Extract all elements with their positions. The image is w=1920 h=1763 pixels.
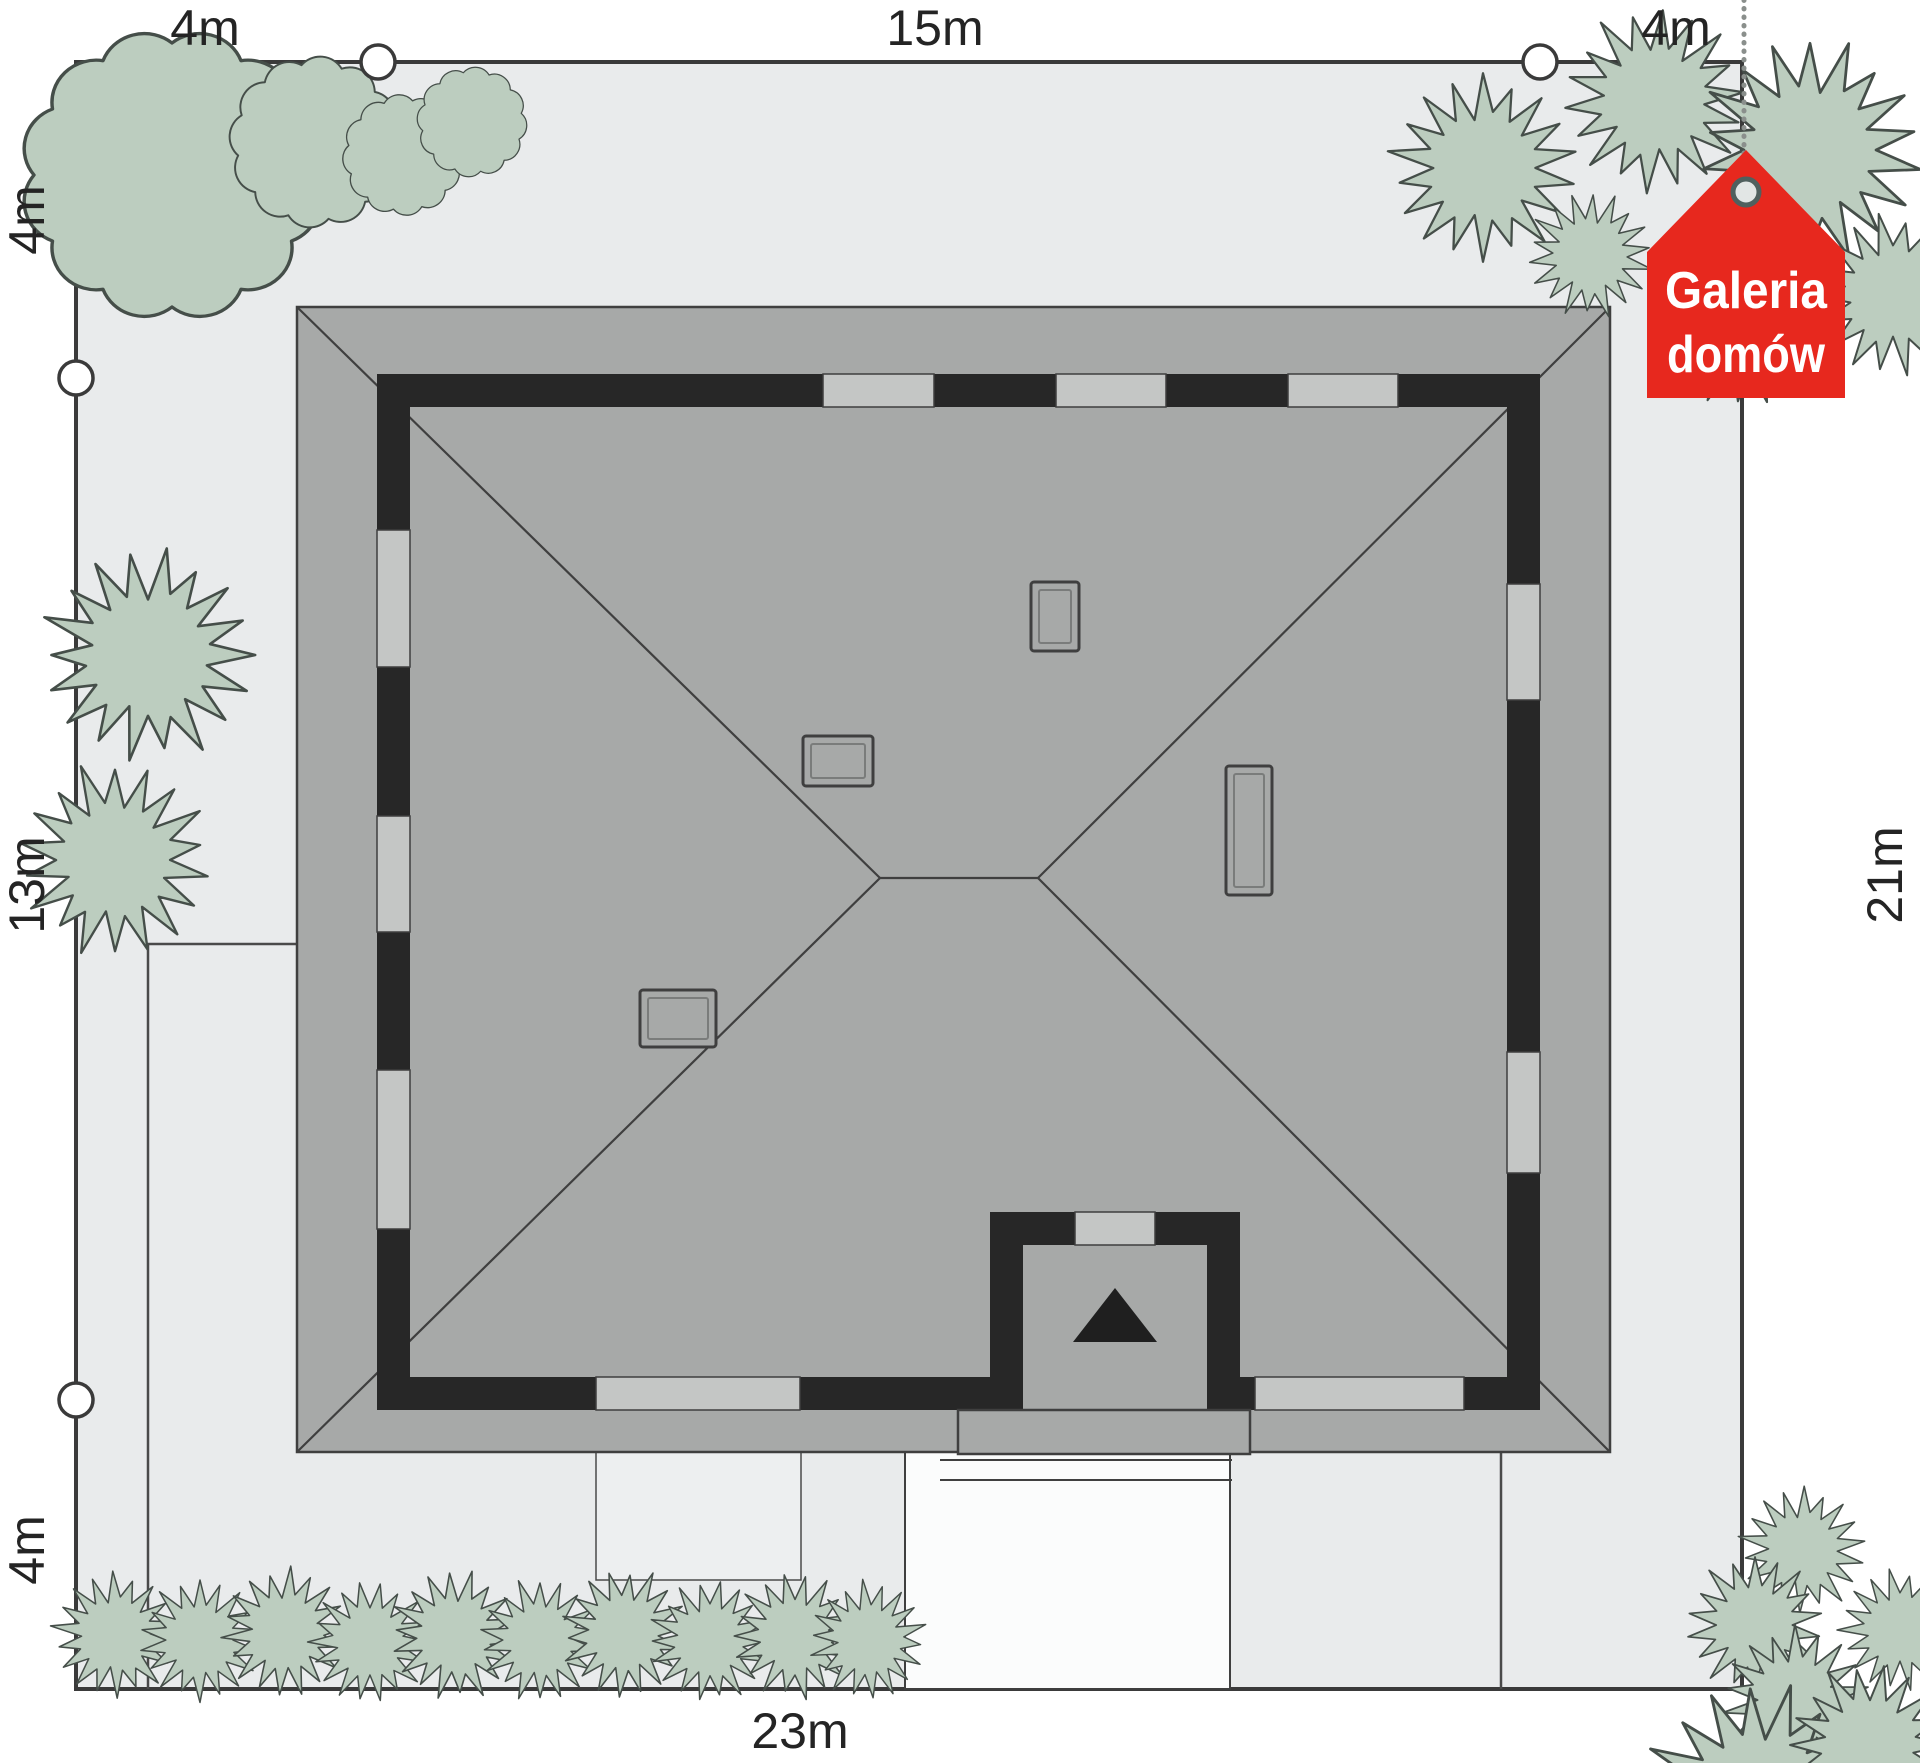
dim-top-center: 15m bbox=[886, 0, 983, 56]
logo-line2: domów bbox=[1667, 326, 1825, 384]
window bbox=[377, 530, 410, 667]
window bbox=[1288, 374, 1398, 407]
window bbox=[377, 1070, 410, 1229]
dim-right: 21m bbox=[1857, 826, 1913, 923]
skylight bbox=[1031, 582, 1079, 651]
survey-marker bbox=[59, 361, 93, 395]
survey-marker bbox=[59, 1383, 93, 1417]
dim-left-middle: 13m bbox=[0, 836, 55, 933]
driveway bbox=[905, 1447, 1230, 1689]
dim-left-bottom: 4m bbox=[0, 1515, 55, 1584]
site-plan: Galeria domów 4m 15m 4m 4m 13m 4m 21m 23… bbox=[0, 0, 1920, 1763]
skylight bbox=[803, 736, 873, 786]
house bbox=[297, 307, 1610, 1454]
terrace-slab bbox=[596, 1447, 801, 1580]
tag-hole-icon bbox=[1733, 179, 1759, 205]
window bbox=[377, 816, 410, 932]
terrace-window bbox=[596, 1377, 800, 1410]
entrance-porch bbox=[958, 1410, 1250, 1454]
window bbox=[1255, 1377, 1464, 1410]
dim-top-right: 4m bbox=[1641, 0, 1710, 56]
survey-marker bbox=[361, 45, 395, 79]
chimney bbox=[1226, 766, 1272, 895]
window bbox=[1056, 374, 1166, 407]
skylight bbox=[640, 990, 716, 1047]
dim-left-top: 4m bbox=[0, 185, 55, 254]
survey-marker bbox=[1523, 45, 1557, 79]
shrub bbox=[1837, 1569, 1920, 1690]
window bbox=[823, 374, 934, 407]
logo-line1: Galeria bbox=[1665, 262, 1828, 320]
dim-bottom: 23m bbox=[751, 1703, 848, 1759]
window bbox=[1507, 584, 1540, 700]
roof-outline bbox=[297, 307, 1610, 1452]
entrance-door bbox=[1075, 1212, 1155, 1245]
window bbox=[1507, 1052, 1540, 1173]
dim-top-left: 4m bbox=[170, 0, 239, 56]
